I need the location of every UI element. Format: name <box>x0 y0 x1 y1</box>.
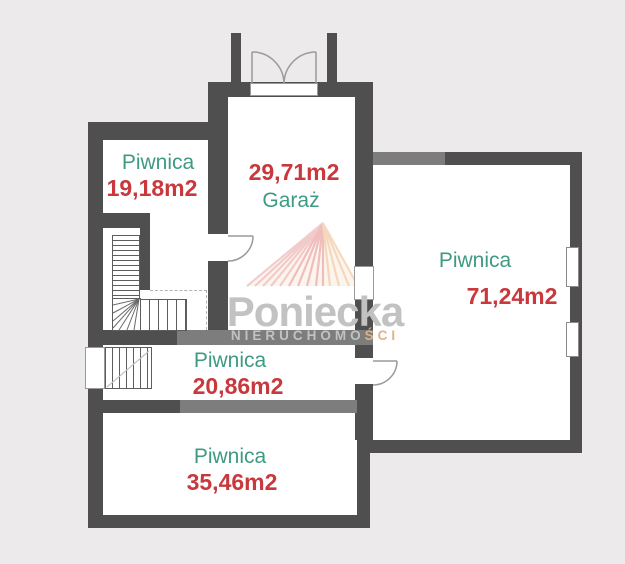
room-name-cellar-right: Piwnica <box>415 250 535 272</box>
watermark-brand: Poniecka <box>155 291 475 333</box>
floor-plan-canvas: Piwnica 19,18m2 29,71m2 Garaż Piwnica 71… <box>0 0 625 564</box>
room-name-cellar-middle: Piwnica <box>170 350 290 372</box>
watermark-tagline: NIERUCHOMOŚCI <box>155 329 475 343</box>
room-name-cellar-top-left: Piwnica <box>98 152 218 174</box>
winder-fan-lines <box>113 299 139 330</box>
stair-direction-line <box>107 351 149 387</box>
room-area-garage: 29,71m2 <box>224 160 364 184</box>
watermark-tagline-accent: ŚCI <box>365 328 400 343</box>
room-area-cellar-bottom: 35,46m2 <box>162 470 302 494</box>
room-name-garage: Garaż <box>231 190 351 212</box>
room-area-cellar-top-left: 19,18m2 <box>82 176 222 200</box>
door-swing-overlay <box>0 0 625 564</box>
room-area-cellar-middle: 20,86m2 <box>168 374 308 398</box>
watermark-tagline-main: NIERUCHOMO <box>231 328 365 343</box>
room-name-cellar-bottom: Piwnica <box>170 446 290 468</box>
